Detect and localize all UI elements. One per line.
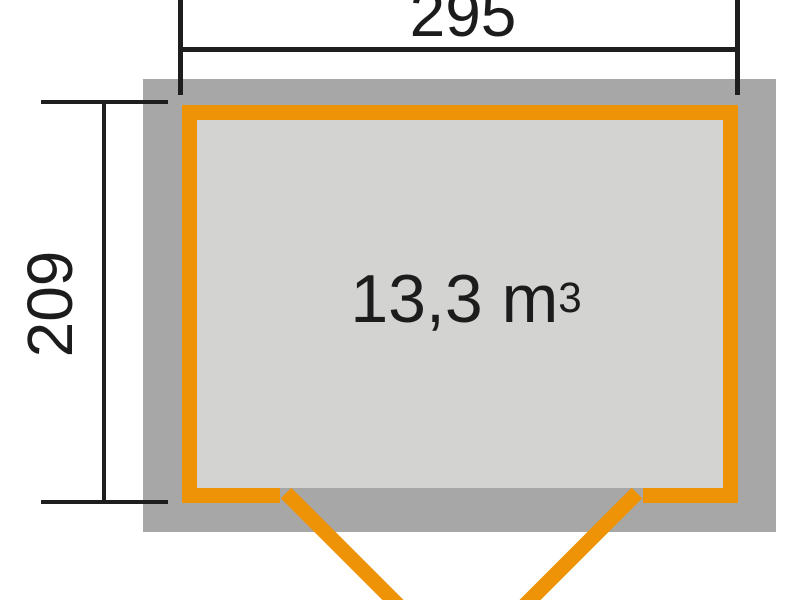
floorplan-diagram: 295 209 13,3 m3 <box>0 0 800 600</box>
volume-label: 13,3 m3 <box>166 258 766 338</box>
width-extension-line-right <box>735 0 740 95</box>
depth-extension-tick-top <box>41 100 168 104</box>
volume-exponent: 3 <box>558 274 581 321</box>
depth-extension-tick-bottom <box>41 500 168 504</box>
width-extension-line-left <box>178 0 183 95</box>
depth-dimension-label: 209 <box>18 204 82 404</box>
volume-value: 13,3 m <box>350 261 558 337</box>
door-opening <box>280 488 643 503</box>
width-dimension-label: 295 <box>363 0 563 46</box>
depth-dimension-line <box>102 102 106 502</box>
